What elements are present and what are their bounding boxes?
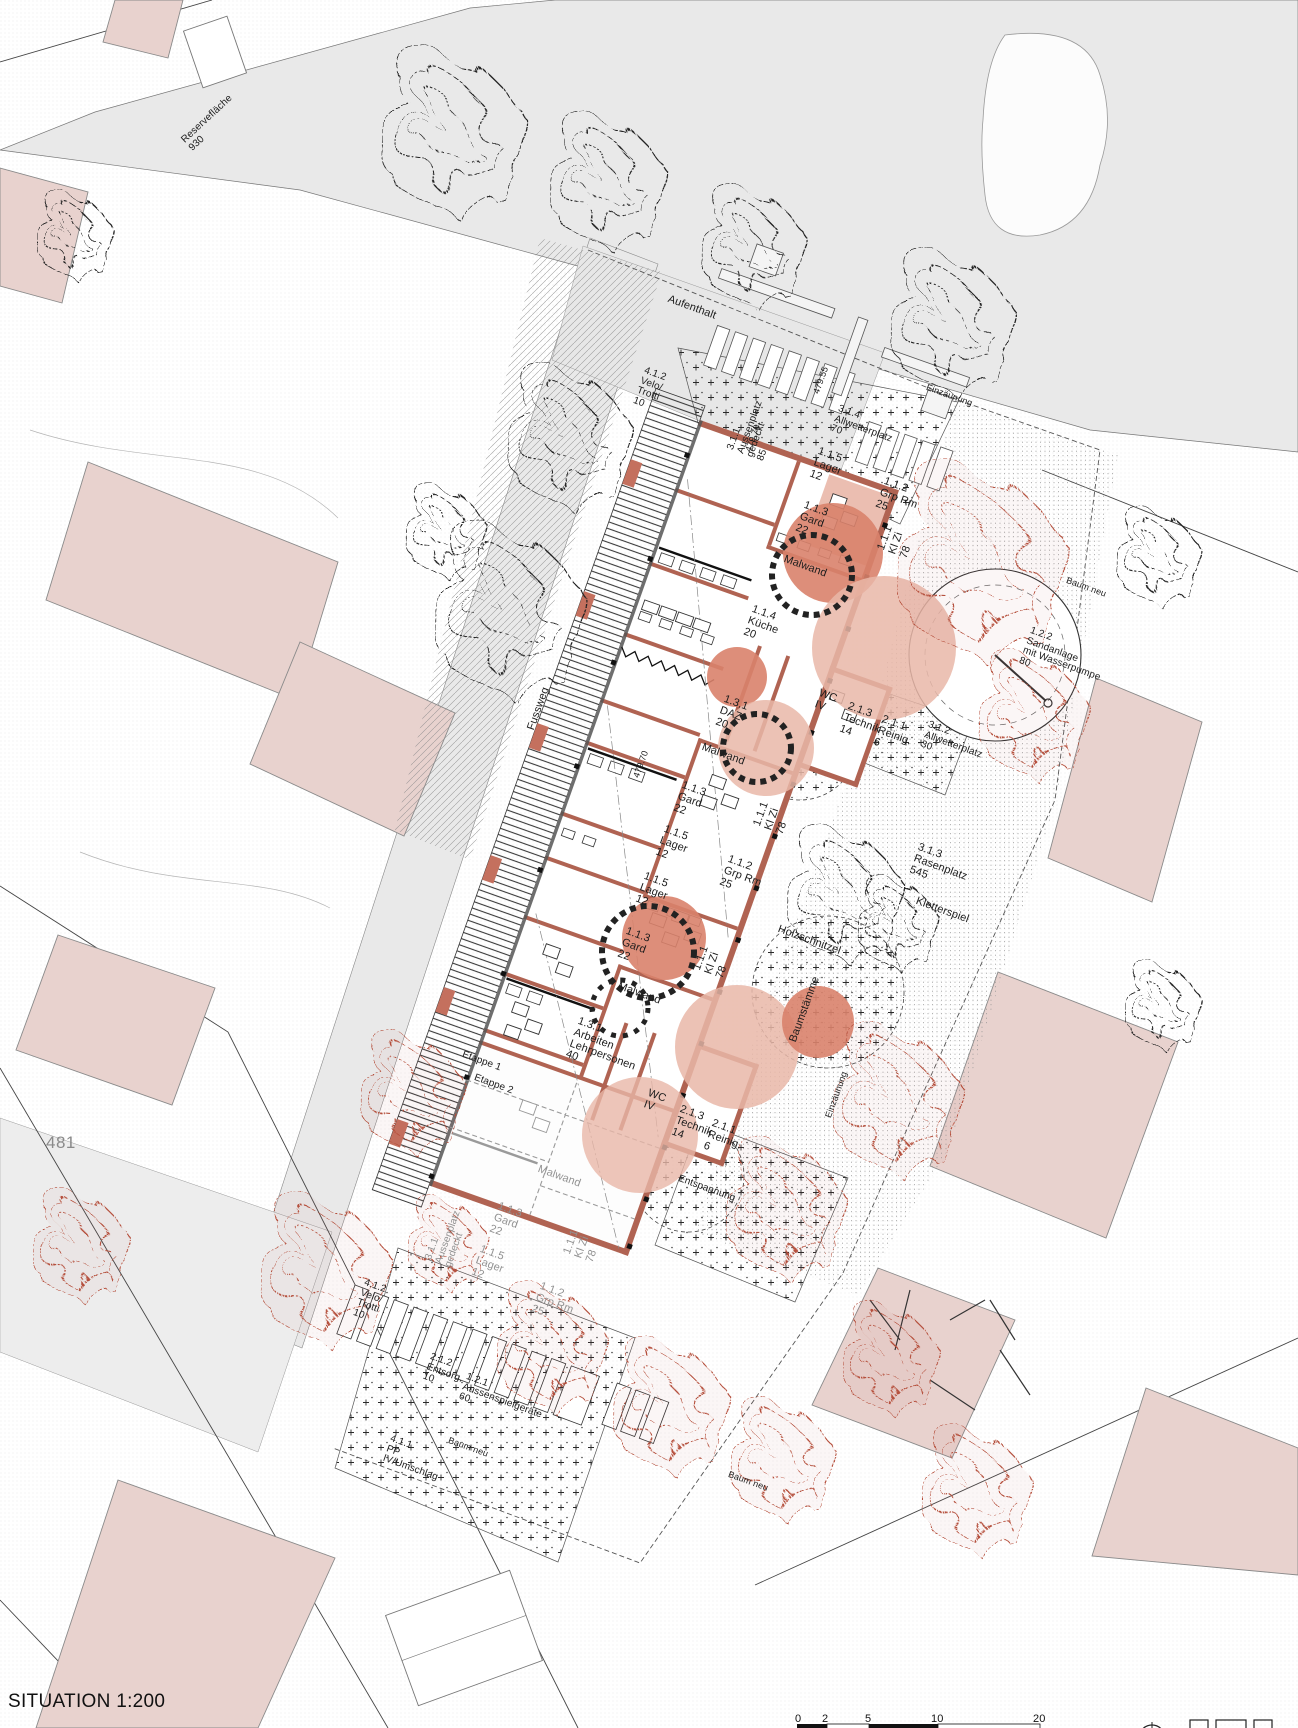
scale-tick-20: 20 <box>1033 1714 1045 1726</box>
scale-tick-10: 10 <box>931 1714 943 1726</box>
scale-tick-5: 5 <box>865 1714 871 1726</box>
scale-tick-0: 0 <box>795 1714 801 1726</box>
scale-tick-2: 2 <box>822 1714 828 1726</box>
label-parcel-481: 481 <box>46 1134 76 1152</box>
site-plan: 1.1.5 Lager 12 1.1.2 Grp Rm 25 1.1.3 Gar… <box>0 0 1298 1728</box>
plan-graphics <box>0 0 1298 1728</box>
page-title: SITUATION 1:200 <box>8 1692 165 1712</box>
